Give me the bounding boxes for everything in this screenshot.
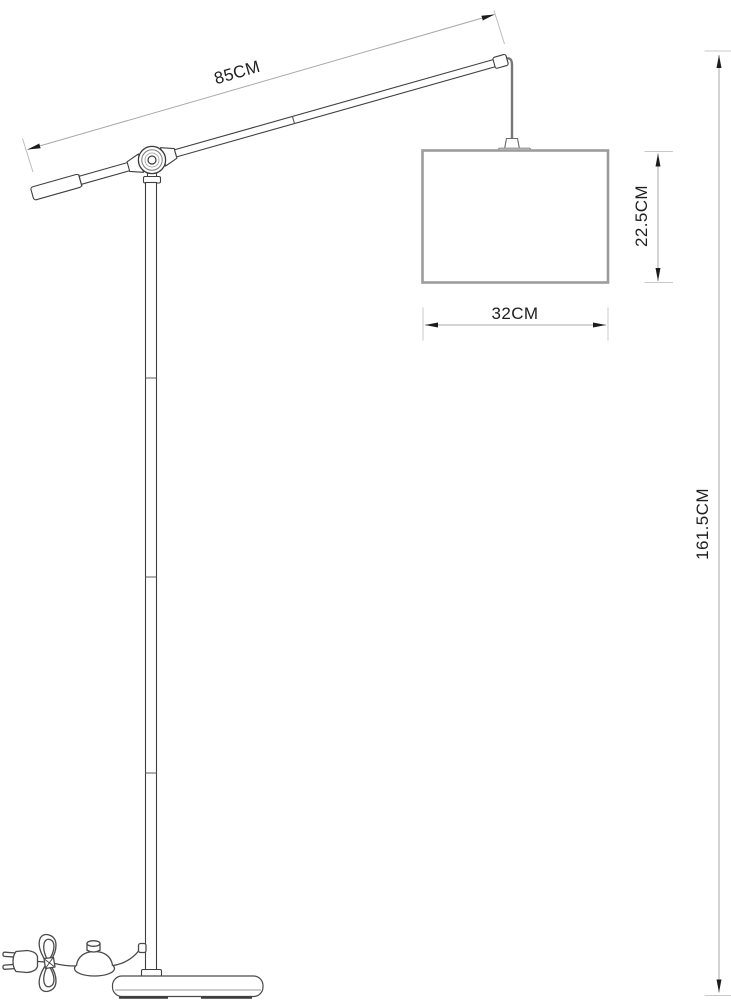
cord-coil-to-switch bbox=[55, 964, 76, 967]
foot-switch bbox=[75, 941, 115, 976]
cord-switch-to-pole bbox=[113, 951, 139, 966]
cord-coil bbox=[39, 935, 56, 992]
dimension-arm-length: 85CM bbox=[23, 11, 505, 173]
dimension-label-shade-height: 22.5CM bbox=[632, 185, 651, 247]
power-plug bbox=[3, 951, 38, 973]
arm-end-cap bbox=[493, 54, 509, 69]
dimension-total-height: 161.5CM bbox=[693, 51, 731, 996]
extension-lines bbox=[23, 11, 505, 173]
dimension-shade-width: 32CM bbox=[423, 304, 608, 341]
cord-plug-to-coil bbox=[38, 962, 45, 963]
lamp-shade bbox=[423, 151, 609, 283]
cord-pole-connector bbox=[139, 944, 147, 953]
switch-dome bbox=[77, 952, 113, 966]
dimension-shade-height: 22.5CM bbox=[632, 152, 673, 283]
dimension-label-total-height: 161.5CM bbox=[693, 488, 712, 560]
lamp-dimension-drawing: 85CM 22.5CM 32CM 161.5CM bbox=[0, 0, 731, 1000]
plug-body bbox=[13, 951, 38, 973]
arm-handle bbox=[30, 174, 82, 201]
drawing-page: 85CM 22.5CM 32CM 161.5CM bbox=[0, 0, 731, 1000]
lamp-pole bbox=[142, 177, 162, 977]
dimension-label-shade-width: 32CM bbox=[492, 304, 539, 323]
switch-button bbox=[87, 941, 100, 952]
lamp-base bbox=[113, 976, 264, 998]
shade-hanger-rod bbox=[507, 58, 513, 139]
arm-rear-rod bbox=[79, 162, 130, 184]
